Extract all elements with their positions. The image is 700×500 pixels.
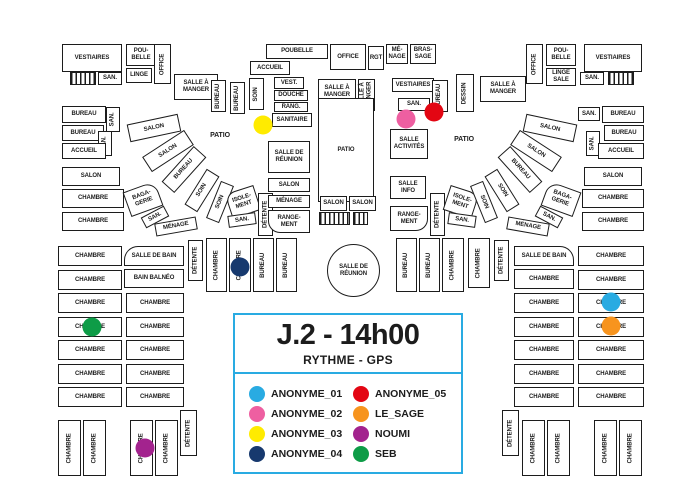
stairs-hatch: [70, 72, 96, 85]
room: LINGE: [126, 68, 152, 83]
room-label: BUREAU: [234, 85, 241, 110]
room-label: CHAMBRE: [598, 195, 628, 202]
legend-entry: ANONYME_01: [249, 386, 353, 402]
legend-entry: SEB: [353, 446, 457, 462]
room: SALON: [62, 167, 120, 186]
room: SAN.: [106, 107, 120, 132]
legend-entry-label: NOUMI: [375, 428, 410, 440]
room-label: SALON: [143, 123, 164, 134]
room-label: SAN.: [147, 211, 162, 223]
room-label: CHAMBRE: [602, 433, 609, 463]
room: CHAMBRE: [578, 364, 644, 384]
room: SALLE ACTIVITÉS: [390, 129, 428, 159]
room: PATIO: [318, 98, 374, 202]
room-label: VESTIAIRES: [396, 82, 431, 89]
room: SALLE DE RÉUNION: [268, 141, 310, 173]
room-label: BAGA- GERIE: [132, 189, 155, 208]
legend-entry: ANONYME_04: [249, 446, 353, 462]
room-label: BUREAU: [173, 158, 195, 181]
room-label: VESTIAIRES: [75, 55, 110, 62]
room: CHAMBRE: [578, 246, 644, 266]
room: CHAMBRE: [514, 317, 574, 337]
legend-entries: ANONYME_01ANONYME_02ANONYME_03ANONYME_04…: [235, 374, 461, 462]
room-label: BUREAU: [610, 111, 635, 118]
room-label: CHAMBRE: [529, 394, 559, 401]
room: CHAMBRE: [522, 420, 545, 476]
room: BAIN BALNÉO: [124, 269, 184, 288]
room-label: POU- BELLE: [551, 48, 570, 61]
room-label: CHAMBRE: [75, 371, 105, 378]
room: RANGE- MENT: [268, 210, 310, 233]
legend-entry-label: ANONYME_02: [271, 408, 342, 420]
room: CHAMBRE: [578, 270, 644, 290]
room: CHAMBRE: [62, 189, 124, 208]
room-label: SOIN: [478, 194, 490, 210]
room: OFFICE: [526, 44, 543, 84]
room-label: SAN.: [407, 101, 421, 108]
room-label: CHAMBRE: [530, 433, 537, 463]
room: CHAMBRE: [468, 238, 490, 288]
room: ACCUEIL: [250, 61, 290, 75]
room: BUREAU: [604, 125, 644, 141]
room-label: SALON: [526, 143, 547, 160]
room-label: DÉTENTE: [185, 419, 192, 446]
room-label: CHAMBRE: [476, 248, 483, 278]
stairs-hatch: [319, 212, 350, 225]
room-label: ACCUEIL: [608, 148, 634, 155]
room: OFFICE: [154, 44, 171, 84]
room-label: SALLE DE RÉUNION: [275, 150, 304, 163]
room: BUREAU: [602, 106, 644, 123]
room: OFFICE: [330, 44, 366, 70]
room-label: RANGE- MENT: [277, 215, 300, 228]
room: SALLE DE BAIN: [124, 246, 184, 266]
legend-entry-label: ANONYME_03: [271, 428, 342, 440]
room-label: SAN.: [103, 75, 117, 82]
room-label: CHAMBRE: [78, 195, 108, 202]
room: SAN.: [227, 212, 256, 228]
room: DÉTENTE: [180, 410, 197, 456]
room: LINGE SALE: [546, 68, 576, 86]
room-label: VESTIAIRES: [596, 55, 631, 62]
room-label: SAN.: [235, 216, 250, 225]
room: POUBELLE: [266, 44, 328, 59]
room-label: BUREAU: [70, 130, 95, 137]
marker-anonyme_03: [254, 116, 273, 135]
room: CHAMBRE: [514, 269, 574, 289]
room: VEST.: [274, 77, 304, 89]
room-label: BRAS- SAGE: [414, 47, 433, 60]
room-label: SALLE DE BAIN: [132, 253, 177, 260]
marker-anonyme_05: [425, 103, 444, 122]
room: POU- BELLE: [126, 44, 156, 66]
room: PATIO: [196, 128, 244, 144]
room-label: SALLE À MANGER: [324, 85, 350, 98]
room-label: SAN.: [590, 137, 597, 151]
room-label: CHAMBRE: [529, 276, 559, 283]
room-label: CHAMBRE: [75, 347, 105, 354]
legend-subtitle: RYTHME - GPS: [235, 353, 461, 367]
legend-entry-label: SEB: [375, 448, 397, 460]
room-label: OFFICE: [531, 53, 538, 74]
room-label: DÉTENTE: [434, 201, 441, 228]
room-label: MÉNAGE: [163, 221, 190, 232]
room-label: SAN.: [110, 113, 117, 127]
room: PATIO: [440, 132, 488, 148]
room: SALLE DE BAIN: [514, 246, 574, 266]
room: CHAMBRE: [126, 293, 184, 313]
room-label: CHAMBRE: [555, 433, 562, 463]
room-label: MÉNAGE: [515, 221, 542, 232]
room-label: SOIN: [253, 87, 260, 101]
room-label: BAGA- GERIE: [550, 189, 573, 208]
room-label: DOUCHE: [278, 92, 303, 99]
room: SALON: [320, 196, 347, 211]
marker-le_sage: [602, 317, 621, 336]
room-label: BUREAU: [71, 111, 96, 118]
legend-color-dot: [353, 386, 369, 402]
room: DOUCHE: [274, 90, 308, 101]
room: RANG.: [274, 102, 308, 112]
room: ACCUEIL: [62, 143, 106, 159]
room: BUREAU: [276, 238, 297, 292]
room: CHAMBRE: [206, 238, 227, 292]
marker-anonyme_04: [231, 258, 250, 277]
room: CHAMBRE: [155, 420, 178, 476]
room-label: DÉTENTE: [192, 247, 199, 274]
room: SAN.: [580, 72, 604, 85]
room-label: MÉ- NAGE: [389, 47, 406, 60]
room-label: SALLE INFO: [398, 181, 417, 194]
room-label: DÉTENTE: [507, 419, 514, 446]
room: CHAMBRE: [514, 293, 574, 313]
room: SALON: [349, 196, 376, 211]
room-label: VEST.: [281, 80, 297, 87]
room-label: RANGE- MENT: [397, 212, 420, 225]
room-label: SANITAIRE: [277, 117, 308, 124]
room: SALLE DE RÉUNION: [327, 244, 380, 297]
room-label: SALLE À MANGER: [490, 82, 516, 95]
room-label: CHAMBRE: [450, 250, 457, 280]
room-label: CHAMBRE: [140, 347, 170, 354]
room-label: CHAMBRE: [75, 277, 105, 284]
room-label: CHAMBRE: [66, 433, 73, 463]
room: SALON: [584, 167, 642, 186]
legend-entry: ANONYME_03: [249, 426, 353, 442]
room: POU- BELLE: [546, 44, 576, 66]
room: CHAMBRE: [58, 270, 122, 290]
room: SAN.: [98, 72, 122, 85]
legend-entry: ANONYME_02: [249, 406, 353, 422]
room: CHAMBRE: [514, 364, 574, 384]
room-label: CHAMBRE: [529, 347, 559, 354]
legend-entry: ANONYME_05: [353, 386, 457, 402]
room: DÉTENTE: [494, 240, 509, 281]
room: DÉTENTE: [502, 410, 519, 456]
room-label: SALON: [81, 173, 102, 180]
room-label: RGT: [370, 55, 382, 62]
room-label: BUREAU: [403, 252, 410, 277]
room: CHAMBRE: [126, 317, 184, 337]
room-label: SALON: [323, 200, 344, 207]
room: BUREAU: [230, 82, 245, 114]
room: DÉTENTE: [430, 193, 445, 236]
room: CHAMBRE: [514, 387, 574, 407]
room-label: SALON: [158, 143, 179, 160]
legend-color-dot: [249, 386, 265, 402]
room: VESTIAIRES: [584, 44, 642, 72]
room-label: ISOLE- MENT: [450, 193, 473, 212]
room-label: ACCUEIL: [71, 148, 97, 155]
room-label: MÉNAGE: [276, 198, 302, 205]
room: CHAMBRE: [578, 387, 644, 407]
room: CHAMBRE: [58, 340, 122, 360]
room-label: SOIN: [195, 183, 208, 199]
stairs-hatch: [353, 212, 368, 225]
stairs-hatch: [608, 72, 634, 85]
room-label: CHAMBRE: [596, 277, 626, 284]
room: CHAMBRE: [578, 340, 644, 360]
room-label: CHAMBRE: [596, 253, 626, 260]
legend-color-dot: [249, 426, 265, 442]
legend-color-dot: [353, 446, 369, 462]
room-label: CHAMBRE: [596, 394, 626, 401]
room-label: CHAMBRE: [596, 347, 626, 354]
room: SAN.: [447, 212, 476, 228]
room-label: CHAMBRE: [140, 371, 170, 378]
room: CHAMBRE: [62, 212, 124, 231]
room-label: CHAMBRE: [91, 433, 98, 463]
room-label: CHAMBRE: [75, 394, 105, 401]
room-label: SALLE ACTIVITÉS: [394, 137, 424, 150]
room-label: LINGE SALE: [552, 70, 570, 83]
marker-anonyme_02: [397, 110, 416, 129]
room: CHAMBRE: [582, 212, 644, 231]
room: SALLE À MANGER: [480, 76, 526, 102]
room-label: OFFICE: [159, 53, 166, 74]
room-label: POU- BELLE: [131, 48, 150, 61]
room: CHAMBRE: [126, 340, 184, 360]
room: ACCUEIL: [598, 143, 644, 159]
room-label: CHAMBRE: [140, 324, 170, 331]
room-label: BUREAU: [611, 130, 636, 137]
room: CHAMBRE: [58, 420, 81, 476]
room: BUREAU: [211, 80, 226, 112]
room: BUREAU: [253, 238, 274, 292]
room: CHAMBRE: [126, 387, 184, 407]
legend-entry-label: ANONYME_05: [375, 388, 446, 400]
room-label: SAN.: [582, 111, 596, 118]
room-label: SAN.: [455, 216, 470, 225]
room: SALLE INFO: [390, 176, 426, 199]
room-label: PATIO: [210, 132, 230, 140]
legend-entry-label: ANONYME_04: [271, 448, 342, 460]
room-label: DÉTENTE: [498, 247, 505, 274]
legend-color-dot: [249, 406, 265, 422]
room: RGT: [368, 46, 384, 70]
room: MÉNAGE: [268, 195, 310, 208]
room: SAN.: [578, 107, 600, 121]
room: SANITAIRE: [272, 113, 312, 127]
room-label: SALON: [539, 123, 560, 134]
room: CHAMBRE: [582, 189, 644, 208]
room-label: SAN.: [541, 211, 556, 223]
room-label: BAIN BALNÉO: [134, 275, 175, 282]
room-label: BUREAU: [260, 252, 267, 277]
legend-entry: LE_SAGE: [353, 406, 457, 422]
legend-entry-label: ANONYME_01: [271, 388, 342, 400]
room-label: PATIO: [338, 147, 355, 154]
legend-entry-label: LE_SAGE: [375, 408, 424, 420]
room-label: CHAMBRE: [596, 371, 626, 378]
room: BUREAU: [62, 106, 106, 123]
room-label: CHAMBRE: [163, 433, 170, 463]
room: VESTIAIRES: [392, 78, 434, 92]
room-label: CHAMBRE: [75, 300, 105, 307]
room: CHAMBRE: [619, 420, 642, 476]
room: DESSIN: [456, 74, 474, 112]
room-label: BUREAU: [509, 158, 531, 181]
room: CHAMBRE: [58, 246, 122, 266]
room-label: CHAMBRE: [213, 250, 220, 280]
room-label: SALON: [279, 182, 300, 189]
room-label: SALLE DE RÉUNION: [339, 264, 368, 277]
marker-seb: [83, 318, 102, 337]
room-label: CHAMBRE: [598, 218, 628, 225]
room: SOIN: [249, 78, 264, 110]
legend-color-dot: [353, 406, 369, 422]
room-label: ISOLE- MENT: [232, 193, 255, 212]
room: BUREAU: [419, 238, 440, 292]
room: CHAMBRE: [126, 364, 184, 384]
room: CHAMBRE: [514, 340, 574, 360]
room-label: CHAMBRE: [140, 394, 170, 401]
room-label: SOIN: [495, 183, 508, 199]
room: CHAMBRE: [594, 420, 617, 476]
room-label: CHAMBRE: [529, 324, 559, 331]
room-label: CHAMBRE: [140, 300, 170, 307]
legend-panel: J.2 - 14h00 RYTHME - GPS ANONYME_01ANONY…: [233, 313, 463, 474]
legend-color-dot: [249, 446, 265, 462]
room-label: LINGE: [130, 72, 148, 79]
marker-anonyme_01: [602, 293, 621, 312]
legend-entry: NOUMI: [353, 426, 457, 442]
room: CHAMBRE: [83, 420, 106, 476]
legend-color-dot: [353, 426, 369, 442]
room: RANGE- MENT: [390, 206, 428, 231]
room-label: CHAMBRE: [78, 218, 108, 225]
room: VESTIAIRES: [62, 44, 122, 72]
room-label: POUBELLE: [281, 48, 313, 55]
room-label: CHAMBRE: [529, 371, 559, 378]
legend-title: J.2 - 14h00: [235, 319, 461, 352]
room-label: SALLE À MANGER: [183, 80, 209, 93]
room-label: BUREAU: [215, 83, 222, 108]
room-label: SALON: [352, 200, 373, 207]
room: CHAMBRE: [442, 238, 464, 292]
room: CHAMBRE: [58, 293, 122, 313]
room: MÉ- NAGE: [386, 44, 408, 64]
room: CHAMBRE: [547, 420, 570, 476]
room-label: SAN.: [585, 75, 599, 82]
room: CHAMBRE: [58, 364, 122, 384]
room-label: SALLE DE BAIN: [522, 253, 567, 260]
room-label: CHAMBRE: [627, 433, 634, 463]
room: BRAS- SAGE: [410, 44, 436, 64]
room-label: BUREAU: [426, 252, 433, 277]
room-label: RANG.: [282, 104, 301, 111]
room: CHAMBRE: [58, 387, 122, 407]
floor-plan: VESTIAIRESSAN.POU- BELLELINGEOFFICESALLE…: [0, 0, 700, 500]
marker-noumi: [136, 439, 155, 458]
room-label: BUREAU: [283, 252, 290, 277]
room-label: PATIO: [454, 136, 474, 144]
room: DÉTENTE: [188, 240, 203, 281]
room-label: CHAMBRE: [75, 253, 105, 260]
room-label: OFFICE: [337, 54, 358, 61]
room-label: SOIN: [214, 194, 226, 210]
room: BUREAU: [396, 238, 417, 292]
room-label: SALON: [603, 173, 624, 180]
room: SALON: [268, 178, 310, 192]
room-label: CHAMBRE: [529, 300, 559, 307]
room-label: DESSIN: [462, 82, 469, 104]
room-label: ACCUEIL: [257, 65, 283, 72]
